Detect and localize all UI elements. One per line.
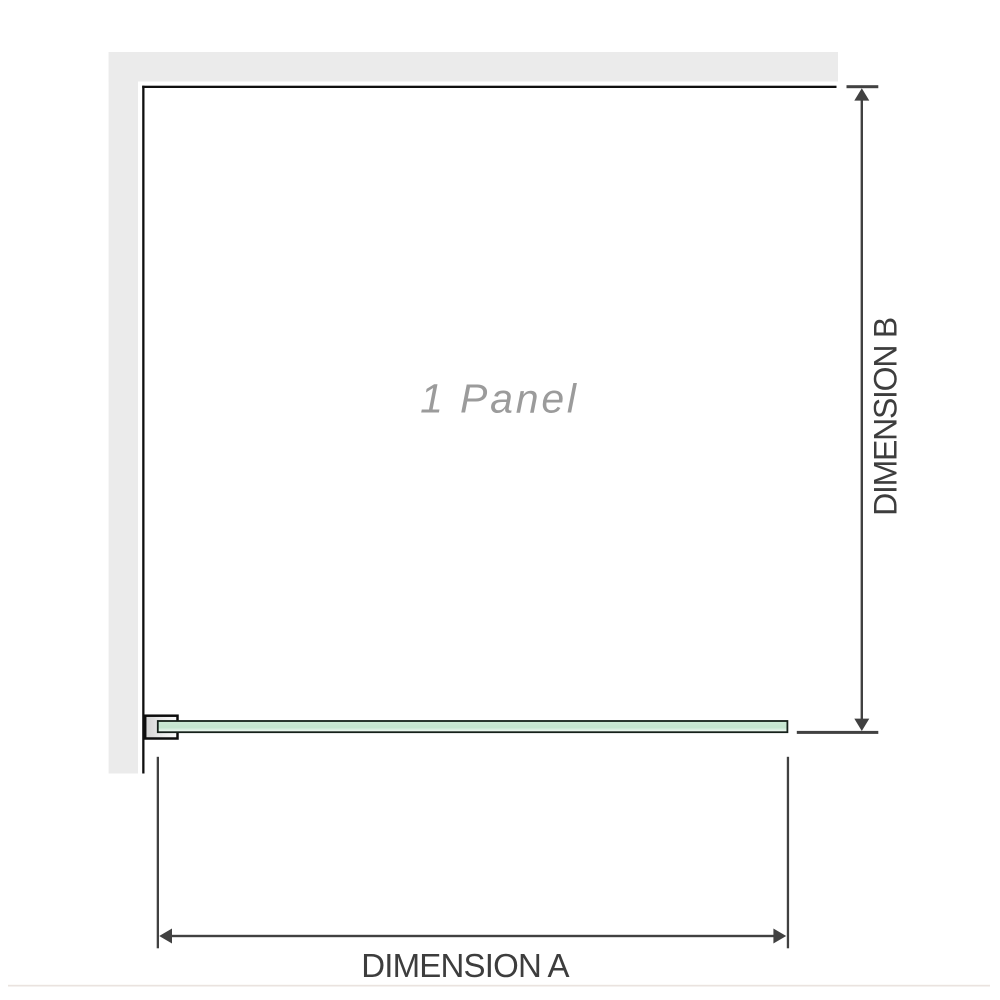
svg-text:DIMENSION A: DIMENSION A bbox=[361, 947, 569, 984]
svg-text:1 Panel: 1 Panel bbox=[420, 376, 579, 422]
svg-text:DIMENSION B: DIMENSION B bbox=[868, 318, 904, 516]
